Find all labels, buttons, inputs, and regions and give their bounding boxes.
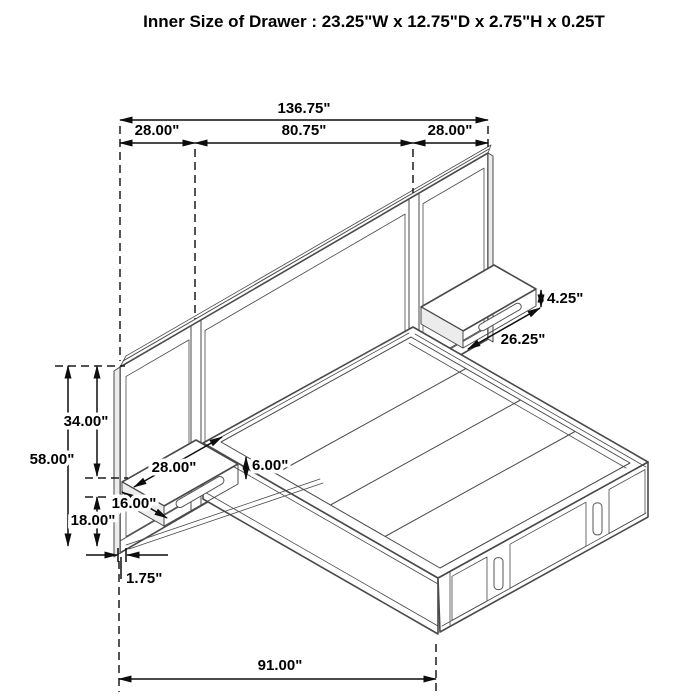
dim-label-base-offset: 1.75" bbox=[126, 570, 162, 587]
drawer-handle-slot bbox=[494, 558, 503, 590]
dim-headboard-height: 58.00" bbox=[30, 366, 75, 546]
dim-label-left-section: 28.00" bbox=[135, 122, 180, 139]
dim-center-section: 80.75" bbox=[195, 122, 413, 143]
dim-label-right-section: 28.00" bbox=[428, 122, 473, 139]
dim-overall-width: 136.75" bbox=[120, 100, 488, 120]
dim-label-left-shelf-height: 6.00" bbox=[252, 457, 288, 474]
dim-label-headboard-height: 58.00" bbox=[30, 451, 75, 468]
dim-label-lower-clearance: 18.00" bbox=[71, 512, 116, 529]
page-title: Inner Size of Drawer : 23.25"W x 12.75"D… bbox=[143, 12, 605, 31]
dim-label-right-shelf-height: 4.25" bbox=[547, 290, 583, 307]
dim-overall-depth: 91.00" bbox=[119, 657, 436, 679]
dim-label-left-shelf-width: 28.00" bbox=[152, 459, 197, 476]
dim-label-right-shelf-width: 26.25" bbox=[501, 331, 546, 348]
dim-label-overall-depth: 91.00" bbox=[258, 657, 303, 674]
diagram-canvas: Inner Size of Drawer : 23.25"W x 12.75"D… bbox=[0, 0, 700, 700]
dim-left-section: 28.00" bbox=[120, 122, 195, 143]
dim-lower-clearance: 18.00" bbox=[71, 497, 116, 546]
dim-label-upper-panel: 34.00" bbox=[64, 413, 109, 430]
dim-label-left-shelf-depth: 16.00" bbox=[112, 495, 157, 512]
dim-base-offset: 1.75" bbox=[86, 548, 168, 587]
dim-label-center-section: 80.75" bbox=[282, 122, 327, 139]
dim-right-shelf-height: 4.25" bbox=[541, 290, 583, 307]
dim-right-section: 28.00" bbox=[413, 122, 488, 143]
bed-dimension-diagram: Inner Size of Drawer : 23.25"W x 12.75"D… bbox=[0, 0, 700, 700]
dim-label-overall-width: 136.75" bbox=[278, 100, 331, 117]
drawer-handle-slot bbox=[593, 503, 602, 535]
